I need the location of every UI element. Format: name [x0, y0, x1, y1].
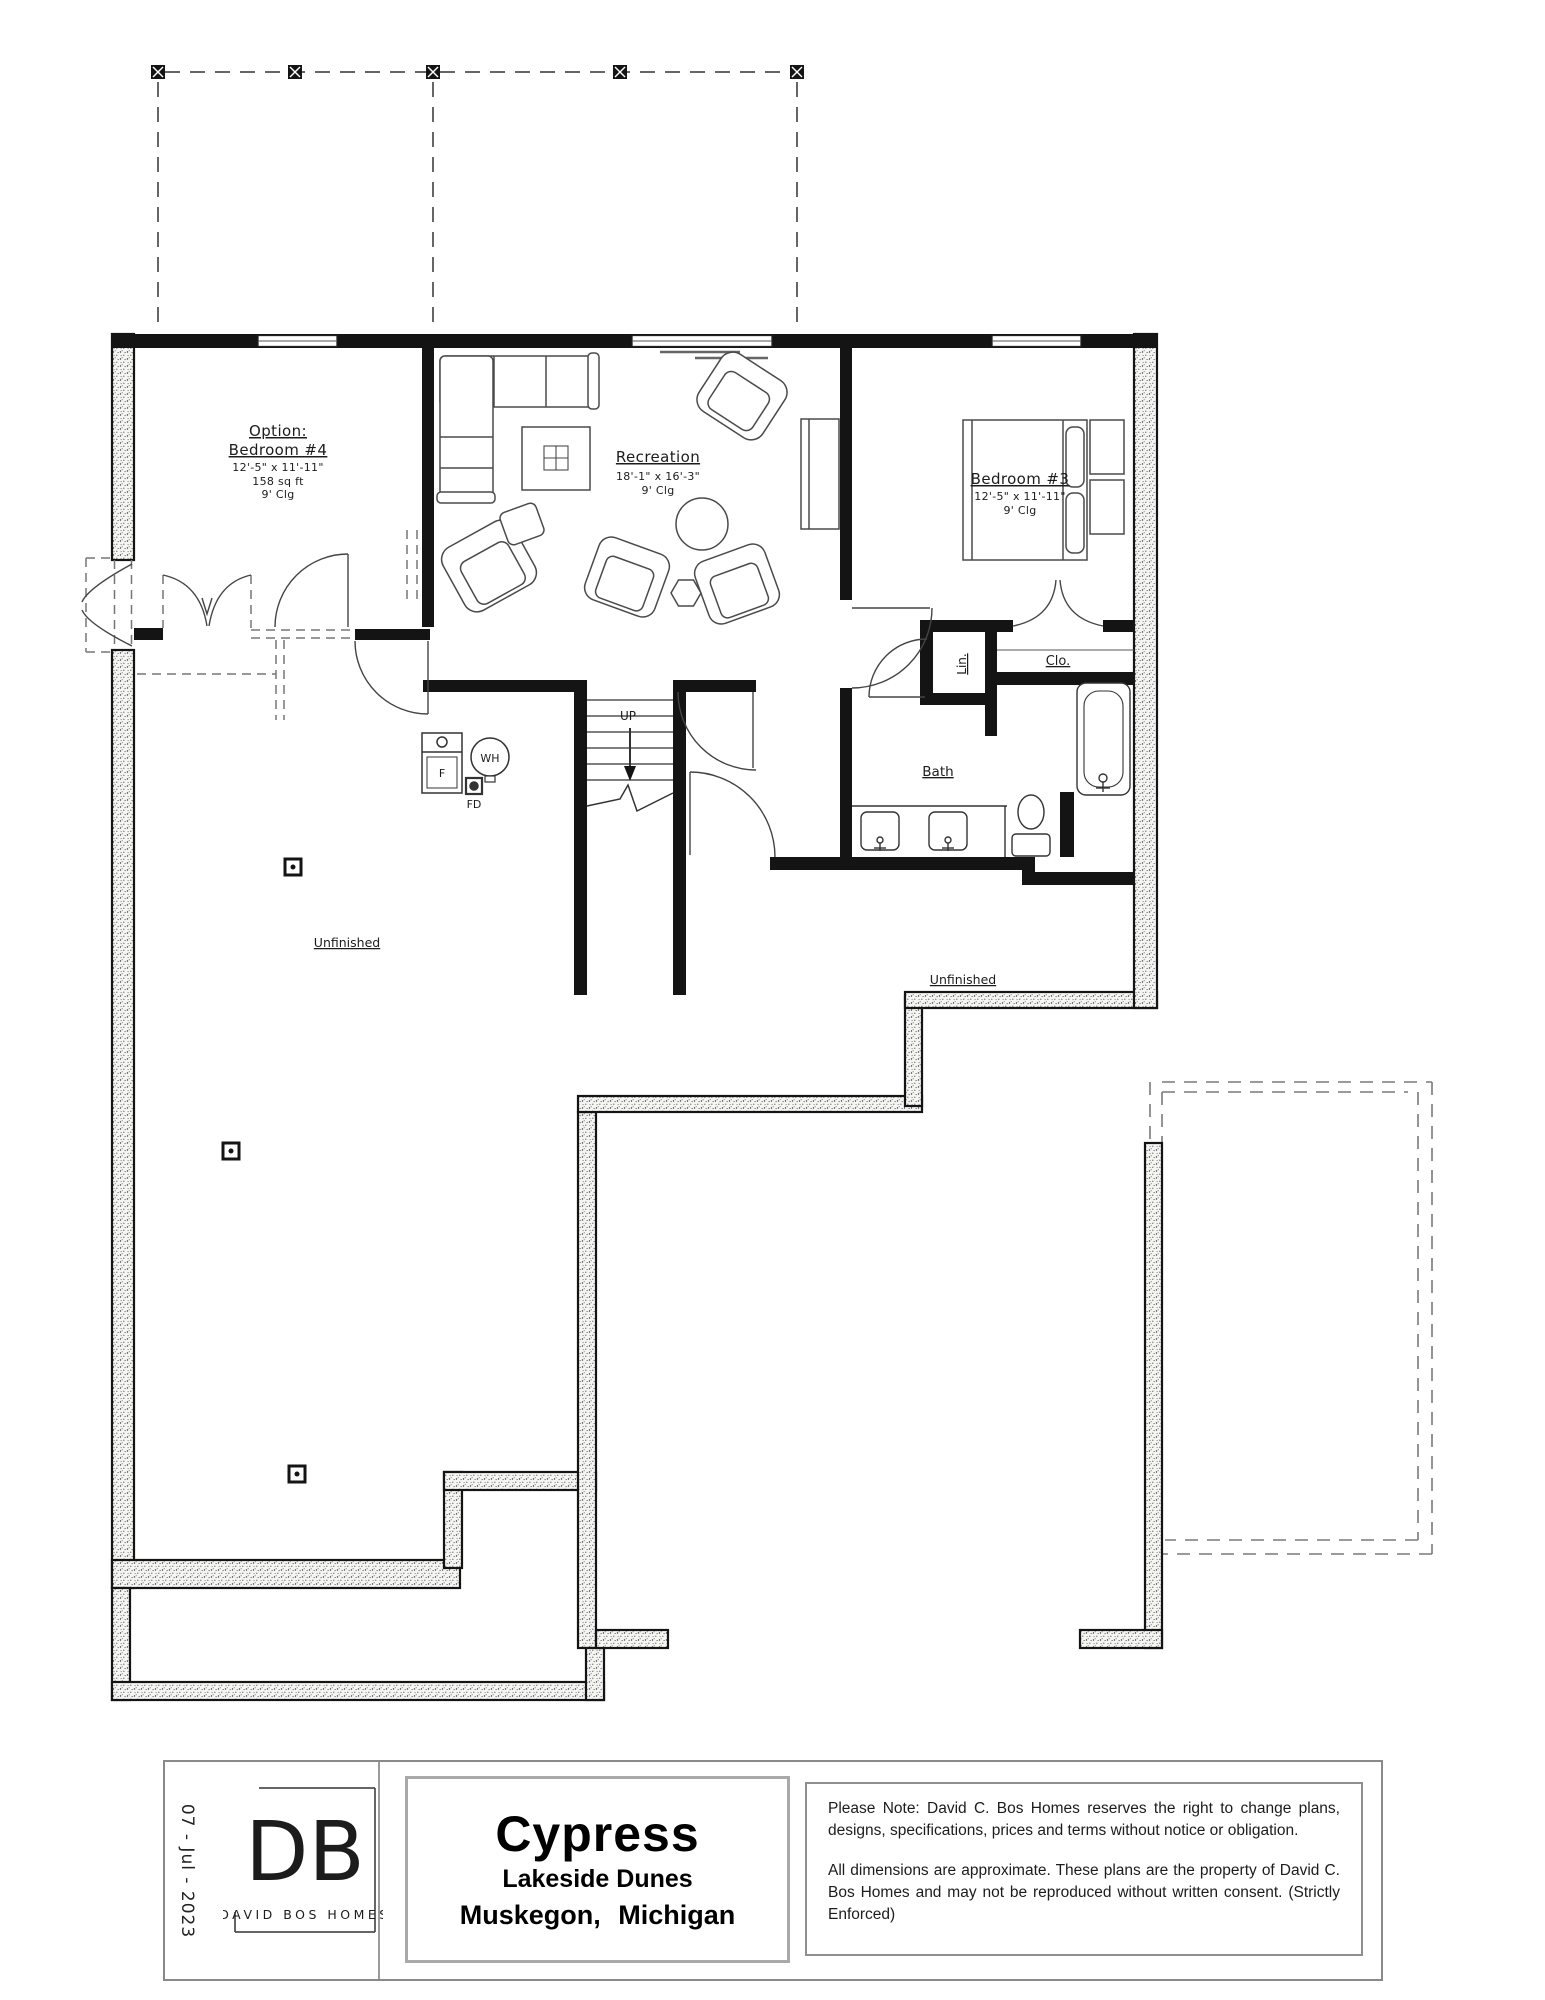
water-heater-label: WH [480, 752, 499, 765]
unfinished-right-label: Unfinished [930, 972, 996, 987]
bedroom3-dims: 12'-5" x 11'-11" [974, 490, 1065, 503]
city-name: Muskegon, Michigan [460, 1900, 736, 1931]
plan-name: Cypress [495, 1808, 699, 1861]
bedroom4-name: Bedroom #4 [229, 441, 328, 459]
linen-label: Lin. [955, 653, 969, 674]
disclaimer-paragraph-1: Please Note: David C. Bos Homes reserves… [828, 1798, 1340, 1842]
floor-plan-drawing: Option: Bedroom #4 12'-5" x 11'-11" 158 … [0, 0, 1545, 1760]
armchair [691, 540, 783, 627]
title-block: 07 - Jul - 2023 DB DAVID BOS HOMES Cypre… [163, 1760, 1383, 1981]
bedroom4-label: Option: [249, 422, 307, 440]
logo-initials: DB [245, 1805, 364, 1900]
recreation-dims: 18'-1" x 16'-3" [616, 470, 700, 483]
column-markers [223, 859, 305, 1482]
unexcavated-dashed-outline [1150, 1082, 1432, 1554]
floor-drain-icon [466, 778, 482, 794]
bedroom4-ceiling: 9' Clg [261, 488, 294, 501]
deck-outline-dashed [158, 72, 797, 332]
logo-company-name: DAVID BOS HOMES [223, 1907, 383, 1922]
stairs-up-label: UP [620, 709, 636, 723]
media-console [801, 419, 839, 529]
unfinished-left-label: Unfinished [314, 935, 380, 950]
nightstand [1090, 420, 1124, 474]
disclaimer-box: Please Note: David C. Bos Homes reserves… [805, 1782, 1363, 1956]
coffee-table [522, 427, 590, 490]
floor-drain-label: FD [467, 798, 482, 811]
hex-side-table [671, 580, 701, 606]
plan-date-text: 07 - Jul - 2023 [177, 1803, 197, 1937]
window-icon [258, 336, 337, 347]
community-name: Lakeside Dunes [502, 1865, 692, 1894]
furnace-label: F [439, 767, 445, 780]
round-table [676, 498, 728, 550]
window-icon [632, 336, 772, 359]
bathtub-icon [1077, 683, 1130, 795]
bedroom3-name: Bedroom #3 [971, 470, 1070, 488]
disclaimer-paragraph-2: All dimensions are approximate. These pl… [828, 1860, 1340, 1926]
plan-date: 07 - Jul - 2023 [165, 1762, 209, 1979]
plan-title-box: Cypress Lakeside Dunes Muskegon, Michiga… [405, 1776, 790, 1963]
armchair [692, 347, 793, 445]
stairs-down-arrow-icon [624, 766, 636, 781]
armchair [581, 533, 673, 620]
toilet-icon [1012, 795, 1050, 856]
closet-label: Clo. [1046, 654, 1071, 669]
recreation-name: Recreation [616, 448, 700, 466]
window-icon [992, 336, 1081, 347]
recreation-ceiling: 9' Clg [641, 484, 674, 497]
bath-label: Bath [922, 764, 953, 780]
plan-sheet: Option: Bedroom #4 12'-5" x 11'-11" 158 … [0, 0, 1545, 2000]
bedroom4-dims: 12'-5" x 11'-11" [232, 461, 323, 474]
bedroom3-ceiling: 9' Clg [1003, 504, 1036, 517]
nightstand [1090, 480, 1124, 534]
bedroom4-area: 158 sq ft [252, 475, 304, 488]
optional-dashed-walls [86, 530, 417, 720]
furnace-icon [422, 733, 462, 793]
builder-logo-drawing: DB DAVID BOS HOMES [223, 1782, 383, 1960]
top-exterior-wall [112, 334, 1157, 358]
vanity-sinks [852, 806, 1007, 857]
